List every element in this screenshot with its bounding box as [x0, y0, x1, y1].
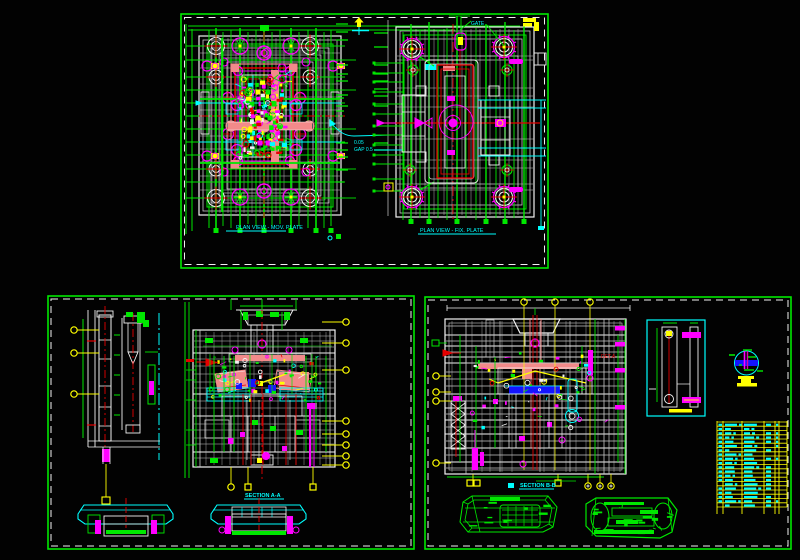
svg-text:0.05: 0.05 — [354, 140, 364, 146]
svg-text:GAP 0.5: GAP 0.5 — [354, 147, 373, 153]
svg-text:SECTION B-B: SECTION B-B — [520, 483, 556, 489]
svg-text:SECTION A-A: SECTION A-A — [245, 493, 281, 499]
svg-text:PLAN VIEW - FIX. PLATE: PLAN VIEW - FIX. PLATE — [420, 228, 484, 234]
svg-text:PLAN VIEW - MOV. PLATE: PLAN VIEW - MOV. PLATE — [236, 225, 303, 231]
svg-text:DET.A: DET.A — [601, 354, 616, 360]
svg-text:GATE: GATE — [471, 21, 485, 27]
